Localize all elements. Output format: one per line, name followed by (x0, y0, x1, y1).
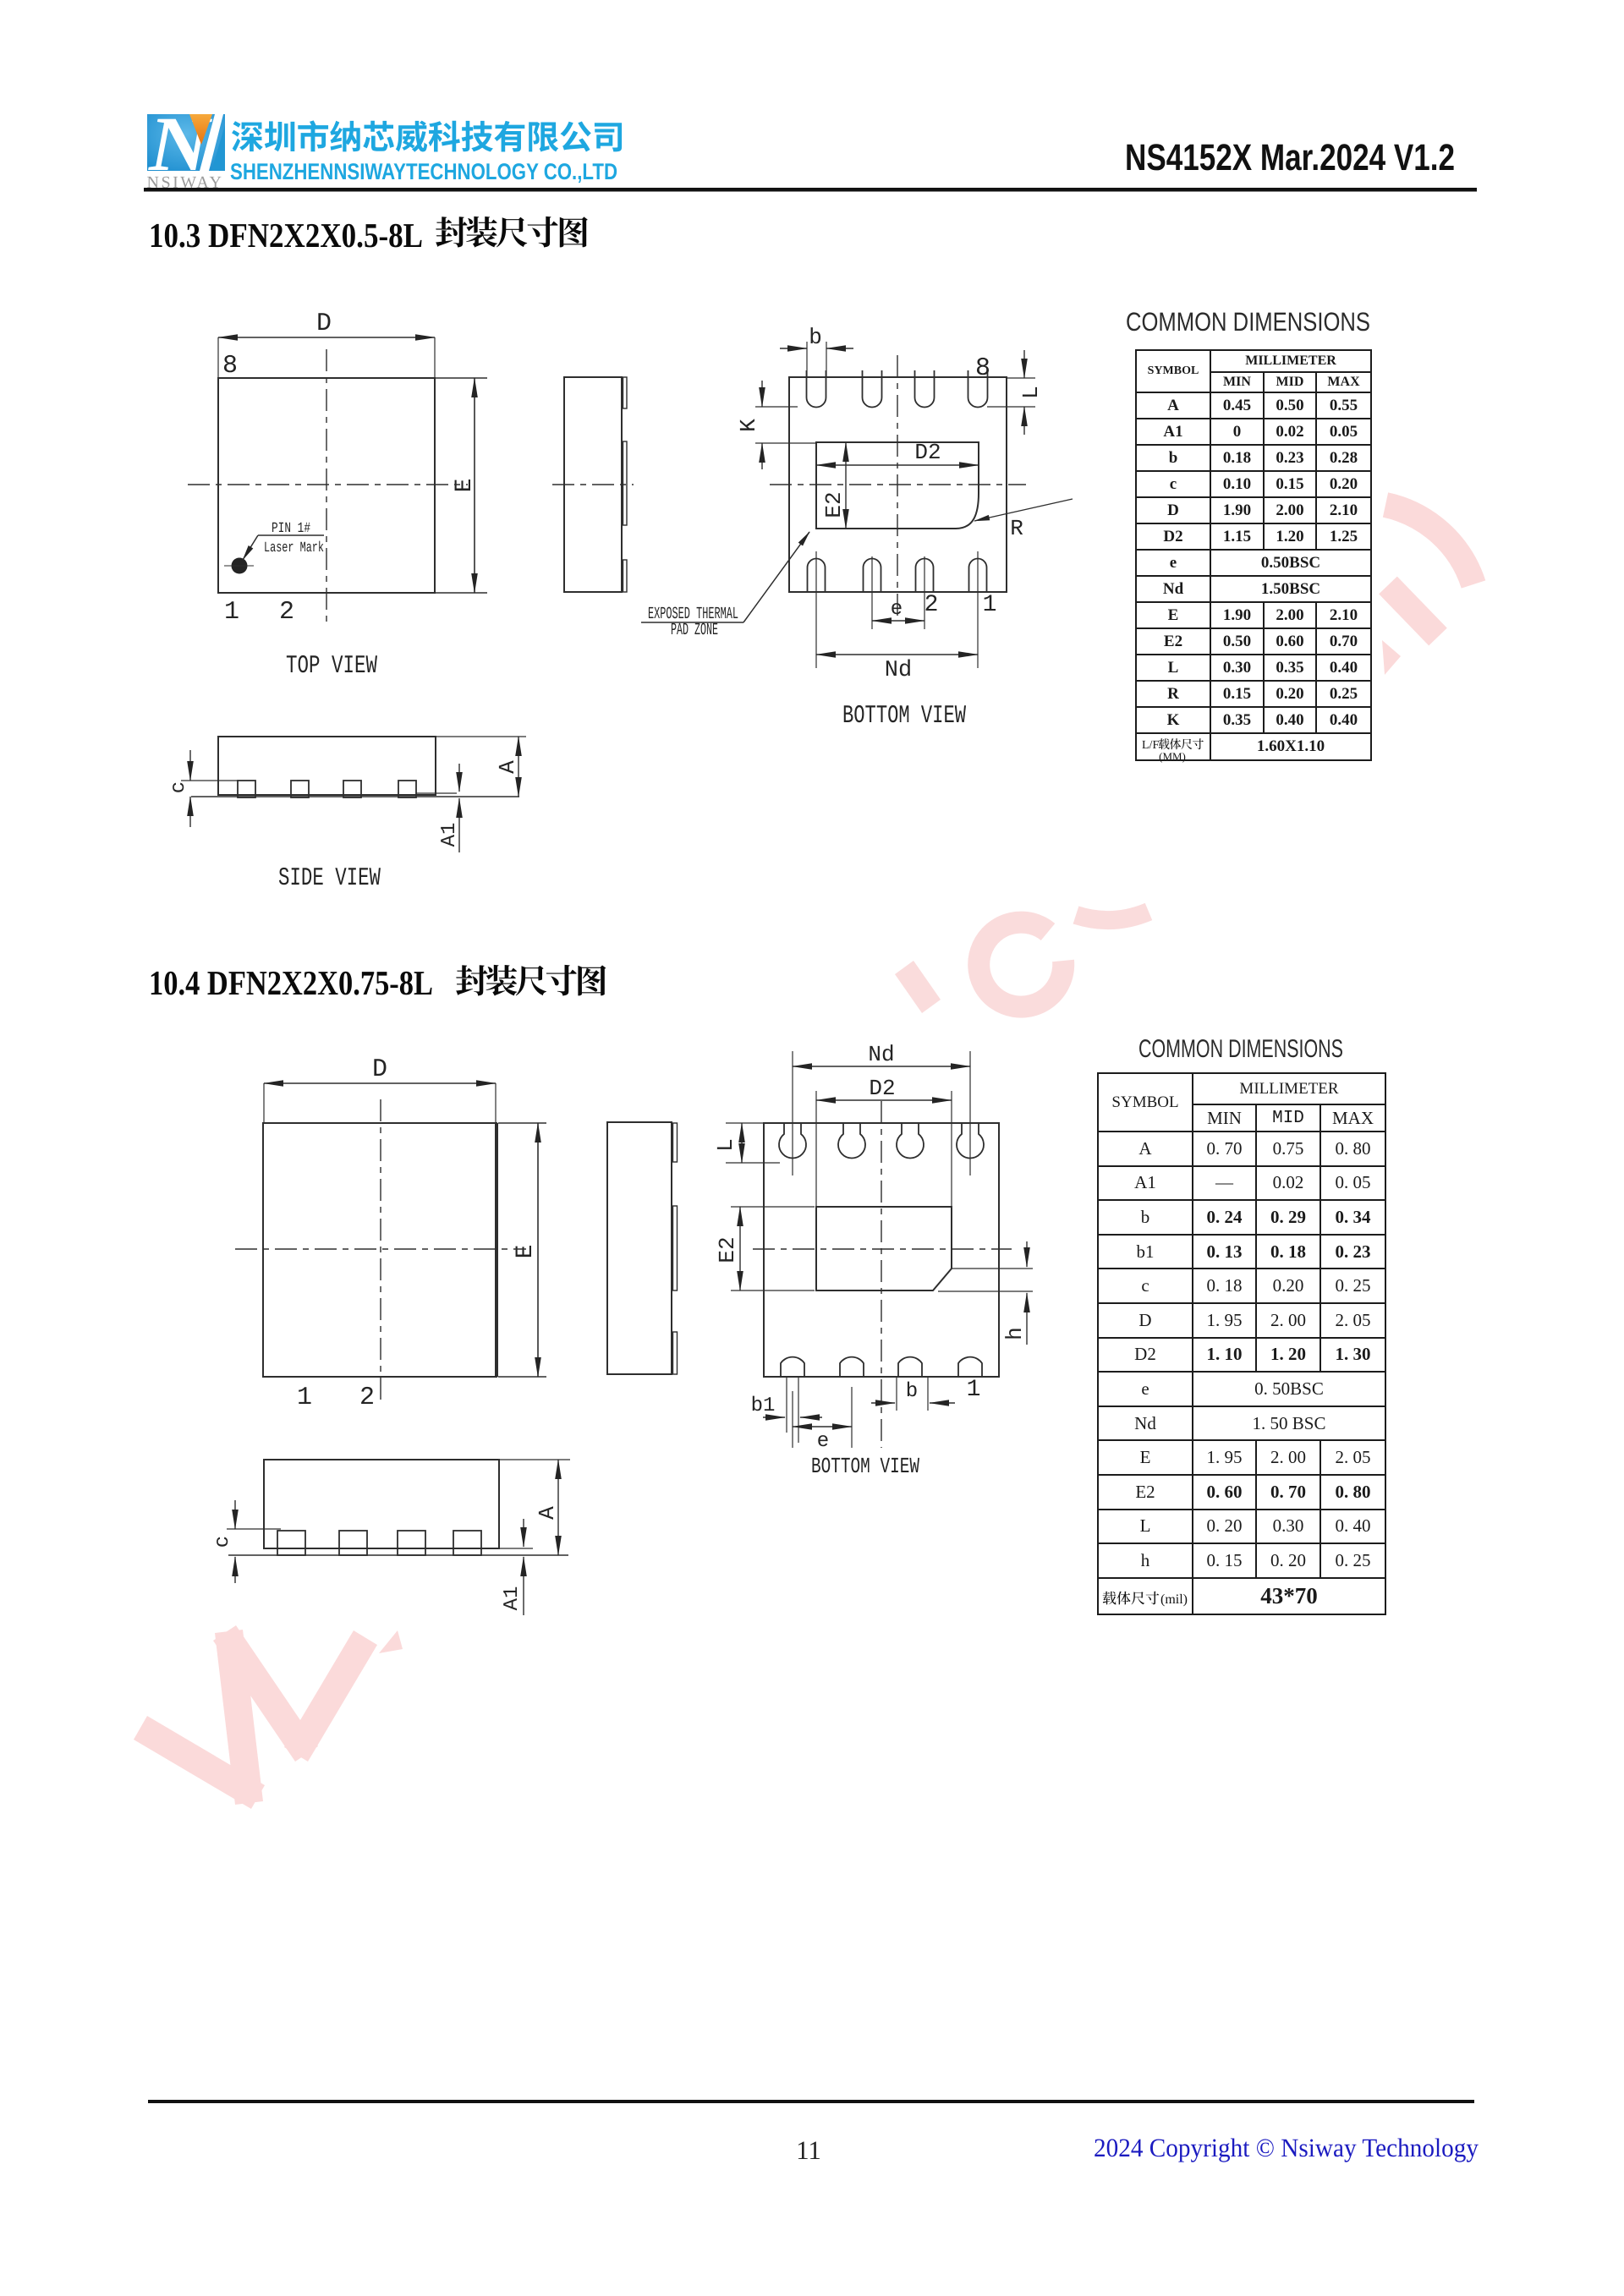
svg-text:A: A (495, 760, 520, 774)
svg-text:D2: D2 (914, 440, 941, 465)
svg-text:b: b (809, 325, 822, 350)
svg-text:L: L (713, 1138, 738, 1152)
svg-text:2024 Copyright © Nsiway Techno: 2024 Copyright © Nsiway Technology (1094, 2133, 1479, 2162)
svg-text:TOP VIEW: TOP VIEW (286, 652, 377, 681)
svg-text:Nd: Nd (868, 1042, 894, 1067)
svg-text:c: c (211, 1536, 234, 1548)
svg-text:10.4 DFN2X2X0.75-8L: 10.4 DFN2X2X0.75-8L (149, 963, 433, 1002)
svg-text:E: E (513, 1245, 539, 1259)
svg-text:NS4152X Mar.2024 V1.2: NS4152X Mar.2024 V1.2 (1125, 137, 1455, 178)
svg-text:D2: D2 (869, 1076, 895, 1101)
svg-text:11: 11 (796, 2135, 821, 2165)
svg-text:8: 8 (975, 354, 990, 383)
svg-text:BOTTOM VIEW: BOTTOM VIEW (842, 702, 966, 731)
svg-text:c: c (167, 781, 190, 793)
svg-text:K: K (736, 419, 761, 432)
svg-text:D: D (372, 1055, 387, 1084)
svg-text:E: E (452, 479, 478, 493)
svg-text:Nd: Nd (885, 658, 912, 683)
svg-text:1: 1 (967, 1377, 981, 1403)
svg-text:SIDE VIEW: SIDE VIEW (278, 864, 381, 893)
svg-text:BOTTOM VIEW: BOTTOM VIEW (811, 1454, 919, 1479)
svg-text:PAD ZONE: PAD ZONE (671, 621, 718, 640)
svg-text:D: D (316, 310, 332, 338)
svg-text:8: 8 (222, 352, 238, 381)
svg-text:b1: b1 (751, 1395, 776, 1417)
svg-text:h: h (1002, 1327, 1028, 1340)
svg-text:2: 2 (359, 1384, 375, 1412)
svg-text:1: 1 (297, 1384, 312, 1412)
svg-text:2: 2 (924, 592, 939, 618)
svg-text:10.3 DFN2X2X0.5-8L: 10.3 DFN2X2X0.5-8L (149, 216, 423, 255)
svg-text:A1: A1 (501, 1586, 524, 1611)
svg-text:A1: A1 (438, 823, 461, 847)
svg-text:PIN 1#: PIN 1# (272, 521, 310, 537)
svg-text:E2: E2 (821, 491, 847, 518)
svg-text:e: e (891, 598, 903, 621)
svg-text:b: b (906, 1380, 918, 1403)
svg-text:L: L (1018, 386, 1044, 399)
svg-text:COMMON DIMENSIONS: COMMON DIMENSIONS (1126, 307, 1370, 337)
svg-text:COMMON DIMENSIONS: COMMON DIMENSIONS (1138, 1035, 1343, 1063)
svg-text:Laser Mark: Laser Mark (264, 540, 324, 556)
svg-text:e: e (817, 1430, 829, 1453)
svg-text:E2: E2 (715, 1236, 740, 1263)
svg-text:1: 1 (983, 592, 997, 618)
svg-text:SHENZHENNSIWAYTECHNOLOGY CO.,L: SHENZHENNSIWAYTECHNOLOGY CO.,LTD (230, 159, 617, 184)
svg-text:R: R (1010, 516, 1023, 541)
svg-text:A: A (535, 1506, 560, 1520)
svg-text:1: 1 (224, 598, 239, 627)
svg-text:2: 2 (279, 598, 294, 627)
